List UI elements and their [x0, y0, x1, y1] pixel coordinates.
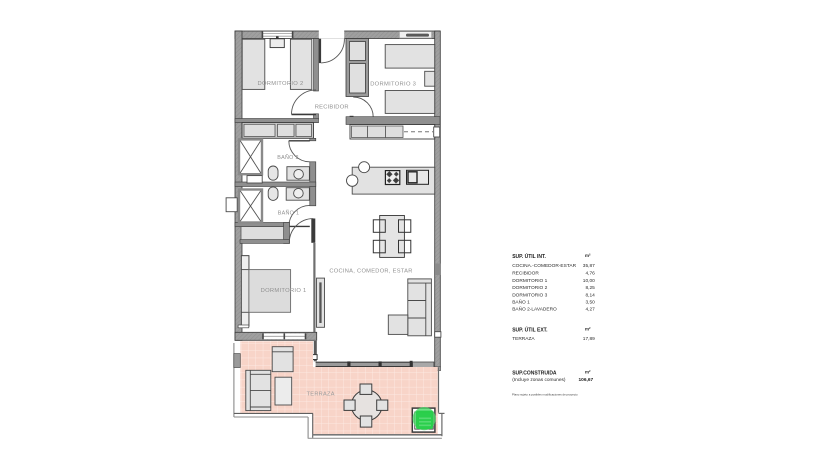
svg-text:8,25: 8,25 [585, 285, 595, 291]
svg-text:SUP. ÚTIL INT.: SUP. ÚTIL INT. [512, 253, 546, 260]
svg-text:m²: m² [585, 253, 591, 258]
svg-text:3,50: 3,50 [585, 299, 595, 305]
svg-text:DORMITORIO 2: DORMITORIO 2 [512, 285, 547, 291]
svg-text:8,14: 8,14 [585, 292, 595, 298]
svg-text:COCINA.-COMEDOR-ESTAR: COCINA.-COMEDOR-ESTAR [512, 263, 576, 269]
svg-text:Plano sujeto a posibles modifi: Plano sujeto a posibles modificaciones d… [512, 392, 578, 396]
svg-text:SUP. ÚTIL EXT.: SUP. ÚTIL EXT. [512, 327, 548, 334]
svg-text:TERRAZA: TERRAZA [512, 336, 535, 342]
svg-text:m²: m² [585, 370, 591, 375]
svg-text:RECIBIDOR: RECIBIDOR [315, 105, 349, 111]
svg-text:4,76: 4,76 [585, 271, 595, 277]
svg-text:m²: m² [585, 327, 591, 332]
svg-text:BAÑO 2: BAÑO 2 [277, 154, 299, 161]
svg-text:SUP.CONSTRUIDA: SUP.CONSTRUIDA [512, 371, 557, 377]
svg-text:17,89: 17,89 [583, 336, 595, 342]
svg-text:BAÑO 1: BAÑO 1 [278, 209, 300, 216]
svg-text:BAÑO 1: BAÑO 1 [512, 298, 530, 305]
svg-text:DORMITORIO 2: DORMITORIO 2 [257, 81, 303, 87]
svg-text:DORMITORIO 3: DORMITORIO 3 [512, 292, 547, 298]
svg-text:COCINA, COMEDOR, ESTAR: COCINA, COMEDOR, ESTAR [329, 269, 412, 275]
svg-text:10,00: 10,00 [583, 278, 595, 284]
svg-text:DORMITORIO 1: DORMITORIO 1 [512, 278, 547, 284]
svg-text:4,27: 4,27 [585, 306, 595, 312]
svg-text:BAÑO 2-LAVADERO: BAÑO 2-LAVADERO [512, 305, 557, 312]
svg-text:(Incluye zonas comunes): (Incluye zonas comunes) [512, 377, 566, 383]
svg-text:RECIBIDOR: RECIBIDOR [512, 271, 539, 277]
svg-text:DORMITORIO 1: DORMITORIO 1 [261, 288, 307, 294]
svg-text:TERRAZA: TERRAZA [307, 392, 335, 398]
svg-text:106,67: 106,67 [579, 377, 594, 383]
svg-text:35,87: 35,87 [583, 263, 595, 269]
svg-text:DORMITORIO 3: DORMITORIO 3 [370, 82, 416, 88]
